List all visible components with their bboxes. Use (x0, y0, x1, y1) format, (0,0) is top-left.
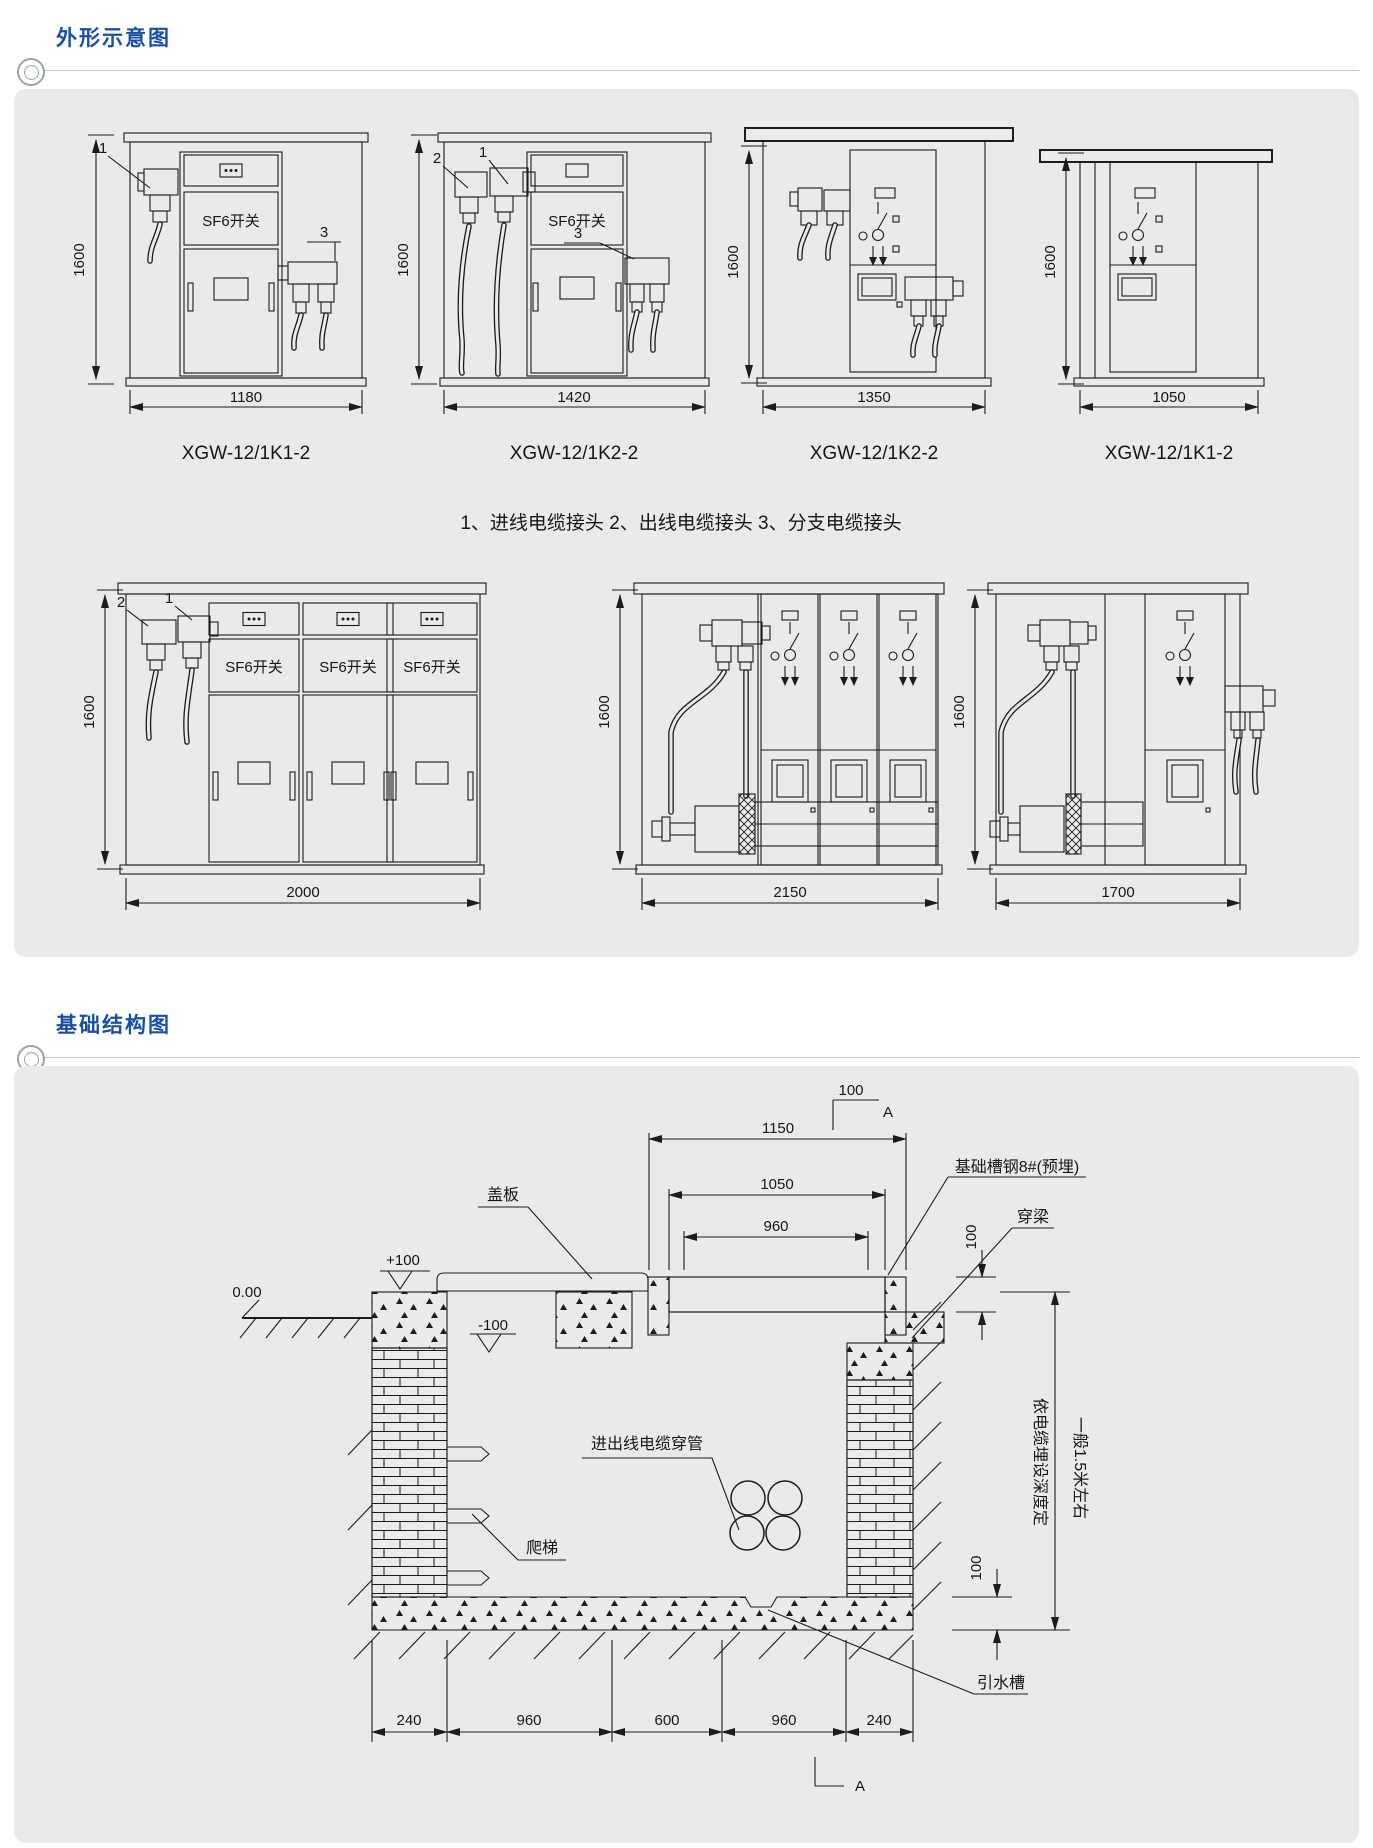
dim-1050: 1050 (760, 1176, 793, 1193)
cabinet-section-2150: 1600 (596, 583, 944, 910)
cabinet-3unit-front: 1600 SF6开关 SF6开关 (81, 583, 486, 910)
dim-floor-100: 100 (968, 1555, 985, 1580)
outline-section-title: 外形示意图 (56, 22, 171, 52)
label-ladder: 爬梯 (526, 1539, 558, 1557)
dim-960: 960 (763, 1218, 788, 1235)
height-dim: 1600 (71, 243, 88, 276)
switch-unit-3: SF6开关 (387, 603, 477, 862)
height-dim: 1600 (725, 245, 742, 278)
cabinet-1k2-2-front: 1600 SF6开关 2 1 (395, 133, 711, 464)
cabinet-1k2-2-side: 1600 (725, 128, 1013, 464)
outline-drawings-panel: 1600 SF6开关 1 (14, 89, 1359, 957)
dim-cover-100: 100 (963, 1224, 980, 1249)
sf6-label: SF6开关 (319, 659, 377, 676)
height-dim: 1600 (596, 695, 613, 728)
dim-1150: 1150 (762, 1120, 794, 1137)
switch-unit-1: SF6开关 (209, 603, 299, 862)
section-divider (44, 70, 1359, 71)
label-cover: 盖板 (487, 1186, 519, 1204)
bottom-dimensions: 240 960 600 960 240 (372, 1640, 913, 1742)
height-dim: 1600 (81, 695, 98, 728)
foundation-section-title: 基础结构图 (56, 1009, 171, 1039)
section-mark-bottom: A (815, 1757, 865, 1795)
label-conduit: 进出线电缆穿管 (591, 1435, 703, 1453)
section-divider (44, 1057, 1359, 1058)
foundation-drawing: 100 A 1150 1050 960 (14, 1066, 1359, 1843)
width-dim: 1050 (1152, 389, 1185, 406)
sf6-label: SF6开关 (225, 659, 283, 676)
dim-240-left: 240 (396, 1712, 421, 1729)
width-dim: 1420 (557, 389, 590, 406)
width-dim: 2000 (286, 884, 319, 901)
width-dim: 1350 (857, 389, 890, 406)
sf6-label: SF6开关 (202, 213, 260, 230)
cabinet-1k1-2-front: 1600 SF6开关 1 (71, 133, 368, 464)
top-dim-100: 100 (838, 1082, 863, 1099)
callout-2: 2 (433, 150, 441, 167)
label-beam: 穿梁 (1017, 1208, 1049, 1226)
callout-2: 2 (117, 594, 125, 611)
callout-1: 1 (479, 144, 487, 161)
label-channel-steel: 基础槽钢8#(预埋) (955, 1158, 1079, 1176)
legend-text: 1、进线电缆接头 2、出线电缆接头 3、分支电缆接头 (460, 512, 901, 534)
width-dim: 2150 (773, 884, 806, 901)
foundation-structure (240, 1273, 944, 1659)
dim-240-right: 240 (866, 1712, 891, 1729)
section-label-a-bottom: A (855, 1778, 865, 1795)
label-drain: 引水槽 (977, 1674, 1025, 1692)
cabinet-1k1-2-side: 1600 1050 XGW-12/1K1-2 (1040, 150, 1272, 464)
model-label: XGW-12/1K2-2 (510, 443, 638, 464)
foundation-panel: 100 A 1150 1050 960 (14, 1066, 1359, 1843)
section-bullet-icon (17, 58, 45, 86)
dim-960-right: 960 (771, 1712, 796, 1729)
height-dim: 1600 (1042, 245, 1059, 278)
sf6-label: SF6开关 (403, 659, 461, 676)
model-label: XGW-12/1K1-2 (182, 443, 310, 464)
model-label: XGW-12/1K2-2 (810, 443, 938, 464)
document-page: 外形示意图 (0, 0, 1373, 1848)
dim-960-left: 960 (516, 1712, 541, 1729)
level-plus100: +100 (386, 1252, 420, 1269)
note-depth-2: 一般1.5米左右 (1071, 1417, 1089, 1519)
level-zero: 0.00 (232, 1284, 261, 1301)
cabinet-section-1700: 1600 (951, 583, 1275, 910)
height-dim: 1600 (951, 695, 968, 728)
level-minus100: -100 (478, 1317, 508, 1334)
model-label: XGW-12/1K1-2 (1105, 443, 1233, 464)
width-dim: 1700 (1101, 884, 1134, 901)
width-dim: 1180 (230, 389, 262, 406)
section-mark-top: 100 A (833, 1082, 893, 1130)
section-label-a: A (883, 1104, 893, 1121)
callout-3: 3 (320, 224, 328, 241)
note-depth-1: 依电缆埋设深度定 (1031, 1398, 1049, 1526)
height-dim: 1600 (395, 243, 412, 276)
dim-600: 600 (654, 1712, 679, 1729)
callout-1: 1 (99, 140, 107, 157)
callout-3: 3 (574, 225, 582, 242)
top-dimensions: 1150 1050 960 (649, 1120, 906, 1270)
outline-drawing: 1600 SF6开关 1 (14, 89, 1359, 957)
switch-unit-2: SF6开关 (303, 603, 393, 862)
callout-1: 1 (165, 590, 173, 607)
